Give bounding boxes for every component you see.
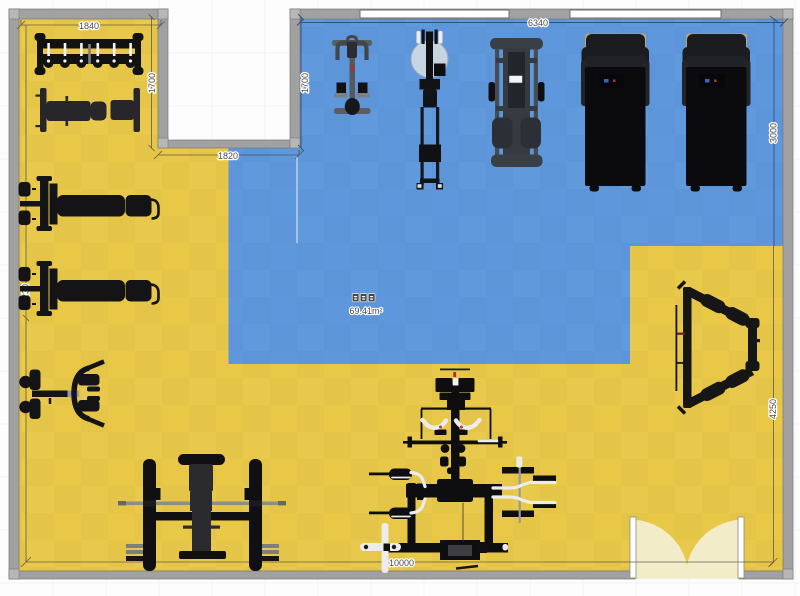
svg-text:4250: 4250: [768, 399, 778, 419]
svg-text:69.41m²: 69.41m²: [349, 306, 382, 316]
svg-text:1840: 1840: [79, 21, 99, 31]
svg-text:3000: 3000: [769, 123, 779, 143]
svg-text:10000: 10000: [389, 558, 414, 568]
svg-text:6340: 6340: [528, 18, 548, 28]
svg-text:1820: 1820: [218, 151, 238, 161]
svg-text:1700: 1700: [300, 73, 310, 93]
svg-text:1700: 1700: [147, 73, 157, 93]
